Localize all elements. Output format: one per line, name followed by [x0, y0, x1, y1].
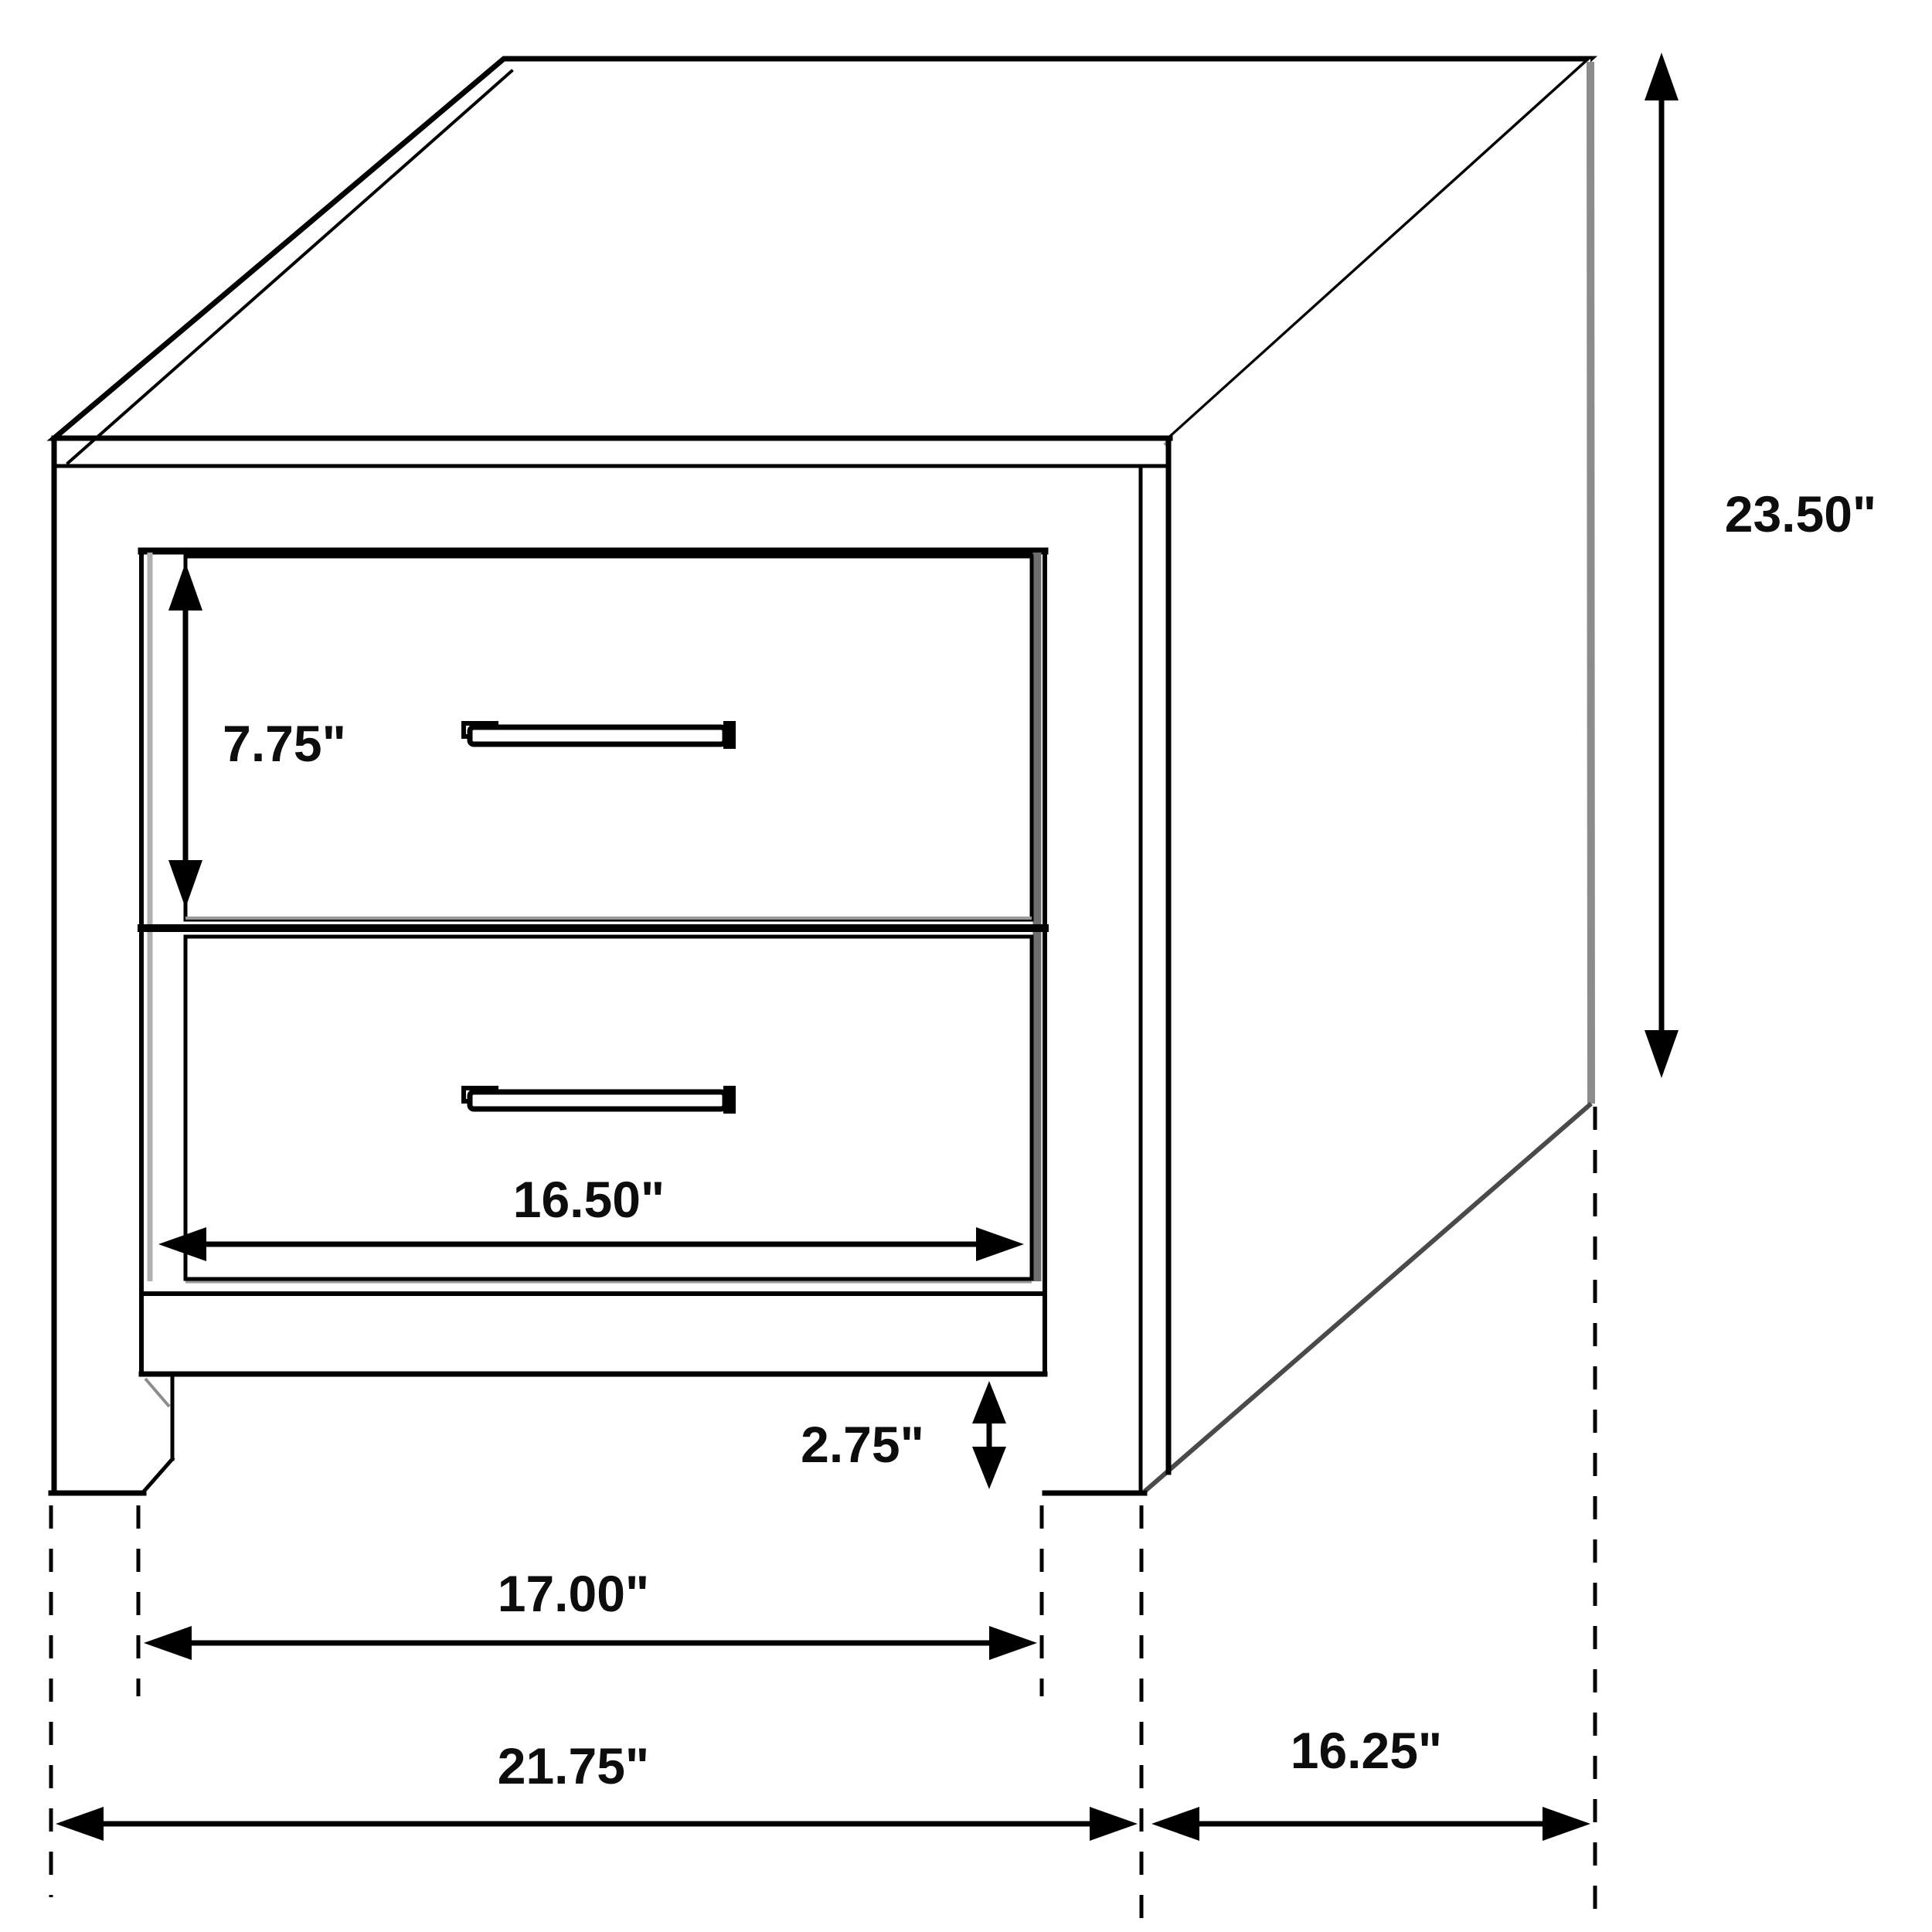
dim-label-drawer-width: 16.50": [513, 1171, 665, 1228]
dim-label-between-legs: 17.00": [498, 1565, 649, 1622]
front-legs: [51, 1376, 1145, 1493]
drawer-handle-2: [464, 1086, 736, 1114]
dim-label-overall-width: 21.75": [498, 1737, 649, 1794]
handle-right-post: [723, 721, 736, 749]
drawer-divider: [141, 918, 1045, 928]
handle-right-post: [723, 1086, 736, 1114]
dim-label-depth: 16.25": [1291, 1722, 1442, 1779]
drawer-handle-1: [464, 721, 736, 749]
dim-label-leg-clearance: 2.75": [801, 1416, 924, 1473]
dim-leg-clearance: 2.75": [801, 1381, 1006, 1489]
dim-overall-height: 23.50": [1645, 53, 1876, 1078]
side-back-edge: [1590, 62, 1591, 1104]
left-leg-shadow: [145, 1379, 169, 1406]
left-leg-depth-diagonal: [144, 1459, 172, 1492]
diagram-canvas: 23.50" 7.75" 16.50" 2.75" 17.00" 21.75": [0, 0, 1932, 1932]
dim-between-legs: 17.00": [144, 1565, 1037, 1660]
dim-label-top-drawer-height: 7.75": [223, 715, 346, 772]
dim-label-overall-height: 23.50": [1725, 485, 1876, 543]
handle-bar: [470, 1092, 725, 1109]
handle-bar: [470, 727, 725, 744]
dim-depth: 16.25": [1151, 1722, 1590, 1841]
nightstand-dimension-diagram: 23.50" 7.75" 16.50" 2.75" 17.00" 21.75": [0, 0, 1932, 1932]
dim-overall-width: 21.75": [56, 1737, 1138, 1841]
